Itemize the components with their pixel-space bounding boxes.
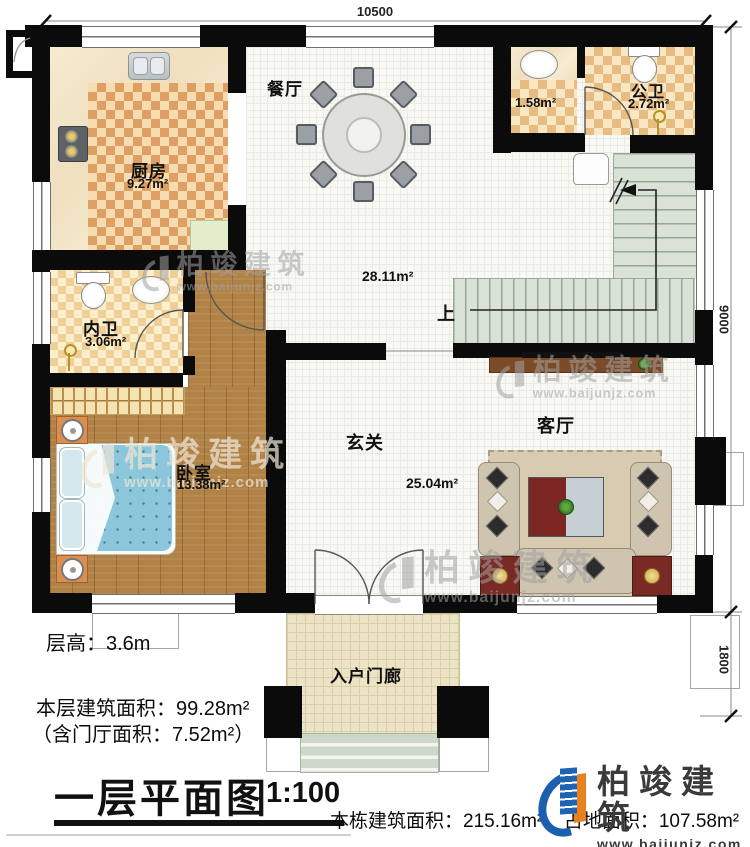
nightstand-lamp [61, 419, 84, 442]
tv-cabinet [489, 357, 663, 373]
inner-bath-drain-stem [68, 353, 70, 371]
kitchen-stove [58, 126, 88, 162]
wall-pier [695, 437, 726, 505]
end-table-lamp-right [644, 568, 660, 584]
area-label-public-bath: 2.72m² [628, 96, 669, 111]
kitchen-cabinet [190, 220, 230, 254]
wall [200, 25, 306, 47]
dining-table-center [346, 117, 382, 153]
nightstand-lamp [61, 558, 84, 581]
fridge [573, 153, 609, 185]
wall [32, 593, 92, 613]
company-logo-icon [540, 764, 591, 830]
stair-lower-run [453, 278, 695, 344]
window-left-kitchen [33, 182, 51, 250]
wall-innerbath-right-top [183, 270, 195, 312]
wall [32, 25, 50, 182]
wall [32, 512, 50, 595]
end-table-lamp-left [492, 568, 508, 584]
porch-column-right [437, 686, 489, 738]
dining-chair [353, 181, 374, 202]
window-bedroom-south [92, 594, 235, 614]
wall-bath-suite-bottom-right [630, 135, 713, 153]
note-floor-area: 本层建筑面积：99.28m² [36, 692, 249, 721]
window-top-dining [306, 26, 434, 48]
porch-column-base-left [266, 737, 302, 772]
area-label-foyer: 25.04m² [406, 475, 458, 491]
total-building-area: 本栋建筑面积：215.16m² [330, 811, 543, 832]
window-left-bedroom [33, 458, 51, 512]
washbasin [520, 50, 558, 79]
room-label-living: 客厅 [537, 412, 575, 438]
window-right-living-2 [696, 505, 714, 555]
wall-kitchen-right-top [228, 25, 246, 93]
wall-kitchen-bottom [32, 250, 233, 270]
exterior-pad-right [690, 615, 740, 689]
area-label-hallway: 28.11m² [362, 268, 413, 284]
tv [522, 352, 622, 358]
dining-chair [410, 124, 431, 145]
wall-foyer-stub [286, 343, 386, 360]
inner-toilet-bowl [81, 282, 106, 309]
wall [434, 25, 713, 47]
porch-column-base-right [439, 737, 489, 772]
stair-upper-run [613, 153, 696, 278]
wall [423, 595, 517, 613]
wall-innerbath-bottom [32, 373, 183, 387]
porch-column-left [264, 686, 302, 738]
bed-pillow [60, 448, 84, 498]
stair-up-label: 上 [437, 300, 456, 326]
wall [695, 555, 713, 613]
dim-top: 10500 [338, 4, 412, 19]
window-top-kitchen [82, 26, 200, 48]
area-label-bedroom: 13.38m² [177, 477, 225, 492]
table-plant [558, 499, 574, 515]
floor-plan-canvas: 10500 9000 1800 餐厅 厨房 9.27m² 1.58m² 公卫 2… [0, 0, 750, 847]
area-label-inner-bath: 3.06m² [85, 334, 126, 349]
wardrobe [50, 387, 185, 415]
title-underline [54, 820, 344, 826]
room-label-foyer: 玄关 [346, 429, 384, 455]
area-label-washbasin: 1.58m² [515, 95, 556, 110]
wall-bath-suite-bottom-left [493, 133, 585, 152]
tv-plant [638, 358, 650, 370]
area-label-kitchen: 9.27m² [127, 176, 168, 191]
inner-bath-drain [64, 344, 77, 357]
wall [695, 25, 713, 190]
public-bath-drain [653, 110, 666, 123]
note-floor-height: 层高：3.6m [46, 627, 150, 656]
dim-right-upper: 9000 [717, 300, 732, 340]
window-living-south [517, 596, 657, 614]
room-label-porch: 入户门廊 [330, 662, 402, 687]
company-logo: 柏竣建筑 www.baijunjz.com [540, 764, 750, 847]
window-left-innerbath [33, 272, 51, 344]
porch-steps [300, 733, 439, 773]
kitchen-sink [128, 52, 170, 80]
company-name: 柏竣建筑 [597, 764, 750, 837]
window-right-living-1 [696, 365, 714, 437]
public-bath-drain-stem [657, 119, 659, 135]
dim-right-lower: 1800 [717, 640, 732, 680]
page-title: 一层平面图 [54, 766, 269, 824]
bed-pillow [60, 500, 84, 550]
dining-chair [353, 67, 374, 88]
room-label-dining: 餐厅 [267, 75, 303, 100]
wall [32, 344, 50, 458]
note-porch-area: （含门厅面积：7.52m²） [32, 718, 254, 747]
entry-door-threshold [315, 595, 423, 615]
company-url: www.baijunjz.com [597, 837, 750, 847]
window-right-stair [696, 190, 714, 310]
wall-bath-divider [577, 42, 585, 78]
wall-innerbath-right-bottom [183, 356, 195, 375]
title-underline-thin [6, 834, 351, 836]
inner-washbasin [132, 276, 170, 304]
wall-corridor-right [266, 330, 286, 595]
dining-chair [296, 124, 317, 145]
wall [235, 593, 315, 613]
